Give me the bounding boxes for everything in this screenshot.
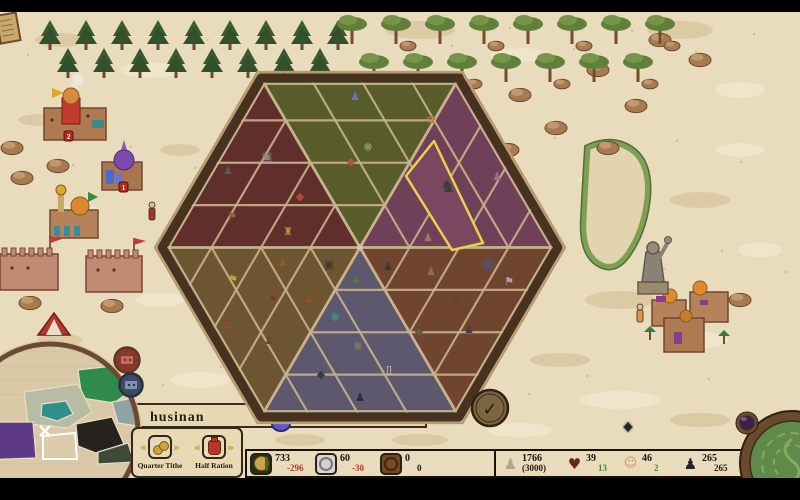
minimap-settlement-badge-blue[interactable]	[120, 374, 143, 397]
board-item[interactable]: ♟	[423, 231, 433, 244]
loyalty-stat: ♥ 39 13	[566, 454, 622, 473]
board-item[interactable]: ⚑	[504, 275, 514, 288]
board-item[interactable]: ❋	[330, 311, 339, 324]
selected-region[interactable]	[43, 433, 77, 459]
world-map[interactable]: husinan21♟❋◆✿▣♞♟☒♟◆♜▣♟⚑♟▣⚑⚑♟⌂♟♟❋❋◆♟▯♟♟▣⚑…	[0, 0, 800, 500]
board-item[interactable]: ◆	[415, 325, 424, 338]
board-item[interactable]: ▣	[324, 258, 334, 271]
board-item[interactable]: ♟	[355, 391, 365, 404]
copper-delta: 0	[417, 464, 422, 473]
purple-region[interactable]	[0, 422, 36, 460]
board-item[interactable]: ♜	[283, 225, 293, 238]
quarter-tithe-label: Quarter Tithe	[134, 461, 186, 470]
letterbox-bottom	[0, 478, 800, 500]
soldiers-delta: 265	[714, 464, 728, 473]
board-item[interactable]: ♟	[426, 265, 436, 278]
board-item[interactable]: ♟	[278, 256, 288, 269]
resource-bar: 733 -296 60 -30 0 0 ♟ 1766 (3000	[245, 449, 800, 478]
confirm-button[interactable]: ✓	[472, 390, 508, 426]
copper-coin-icon	[380, 453, 402, 475]
board-item[interactable]: ♟	[492, 170, 502, 183]
board-item[interactable]: ♟	[350, 90, 360, 103]
game-screen: husinan21♟❋◆✿▣♞♟☒♟◆♜▣♟⚑♟▣⚑⚑♟⌂♟♟❋❋◆♟▯♟♟▣⚑…	[0, 0, 800, 500]
board-item[interactable]: ❋	[353, 340, 362, 353]
food-resource: 733 -296	[250, 453, 312, 475]
stats-section: ♟ 1766 (3000) ♥ 39 13 ☺ 46 2	[494, 451, 752, 476]
happiness-stat: ☺ 46 2	[622, 454, 682, 473]
next-arrow-icon[interactable]: »	[173, 442, 180, 453]
letterbox-top	[0, 0, 800, 12]
board-item[interactable]: ⚑	[227, 210, 237, 223]
happiness-delta: 2	[654, 464, 659, 473]
region-label: husinan	[150, 410, 204, 425]
map-marker-diamond	[622, 421, 634, 433]
board-item[interactable]: ♞	[440, 177, 455, 197]
silver-delta: -30	[352, 464, 364, 473]
food-icon	[250, 453, 272, 475]
board-item[interactable]: ▯	[386, 363, 392, 376]
board-item[interactable]: ♟	[351, 273, 361, 286]
loyalty-delta: 13	[598, 464, 607, 473]
tithe-coins-icon[interactable]	[148, 435, 172, 459]
population-stat: ♟ 1766 (3000)	[502, 454, 566, 473]
next-arrow-icon[interactable]: »	[227, 442, 234, 453]
silver-resource: 60 -30	[315, 453, 377, 475]
board-item[interactable]: ◆	[296, 190, 305, 203]
face-icon: ☺	[622, 456, 639, 471]
board-item[interactable]: ⚑	[228, 273, 238, 286]
soldier-icon: ♟	[682, 455, 699, 473]
board-item[interactable]: ♟	[223, 164, 233, 177]
ledger-icon	[0, 13, 21, 44]
villager-figure	[637, 304, 643, 322]
quarter-tithe-button[interactable]: « » Quarter Tithe	[134, 434, 186, 476]
svg-text:2: 2	[67, 132, 71, 141]
food-delta: -296	[287, 464, 304, 473]
board-item[interactable]: ♟	[304, 293, 314, 306]
silver-coin-icon	[315, 453, 337, 475]
actions-panel: « » Quarter Tithe « » Half Ration	[131, 427, 243, 478]
heart-icon: ♥	[566, 455, 583, 473]
checkmark-icon: ✓	[482, 399, 497, 420]
board-item[interactable]: ▣	[262, 150, 272, 163]
board-item[interactable]: ⚑	[268, 293, 278, 306]
prev-arrow-icon[interactable]: «	[194, 442, 201, 453]
population-icon: ♟	[502, 455, 519, 473]
board-item[interactable]: ◆	[347, 155, 356, 168]
copper-resource: 0 0	[380, 453, 440, 475]
board-item[interactable]: ⌂	[224, 317, 232, 332]
population-cap: (3000)	[522, 464, 546, 473]
half-ration-label: Half Ration	[188, 461, 240, 470]
board-item[interactable]: ❋	[363, 141, 372, 154]
prev-arrow-icon[interactable]: «	[140, 442, 147, 453]
board-item[interactable]: ◆	[317, 368, 326, 381]
board-item[interactable]: ♟	[264, 334, 274, 347]
board-item[interactable]: ▣	[450, 293, 460, 306]
elder-figure	[149, 202, 155, 220]
soldiers-stat: ♟ 265 265	[682, 454, 752, 473]
ration-jug-icon[interactable]	[202, 435, 226, 459]
board-item[interactable]: ☒	[483, 258, 494, 272]
board-item[interactable]: ♟	[464, 323, 474, 336]
board-item[interactable]: ♟	[383, 260, 393, 273]
minimap-settlement-badge-red[interactable]	[115, 348, 140, 373]
board-item[interactable]: ✿	[426, 113, 435, 126]
half-ration-button[interactable]: « » Half Ration	[188, 434, 240, 476]
svg-text:1: 1	[122, 183, 126, 192]
